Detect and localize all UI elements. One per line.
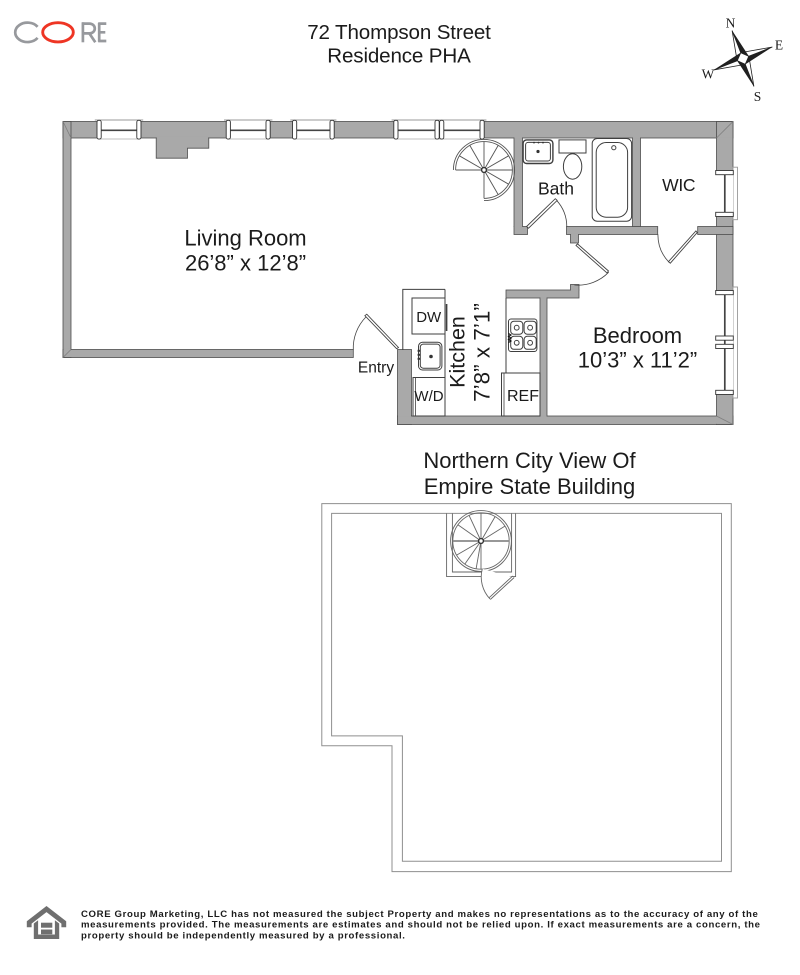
svg-text:REF: REF — [507, 388, 539, 405]
svg-text:Bath: Bath — [538, 178, 574, 198]
svg-text:72 Thompson Street: 72 Thompson Street — [307, 21, 491, 44]
svg-text:WIC: WIC — [662, 175, 695, 195]
svg-text:E: E — [775, 37, 783, 52]
svg-text:CORE Group Marketing, LLC has: CORE Group Marketing, LLC has not measur… — [81, 909, 758, 920]
svg-text:7’8” x 7’1”: 7’8” x 7’1” — [470, 303, 495, 402]
svg-text:property should be independent: property should be independently measure… — [81, 930, 406, 941]
svg-text:Entry: Entry — [358, 360, 394, 377]
svg-text:W: W — [702, 66, 715, 81]
svg-text:Living Room: Living Room — [184, 225, 306, 250]
svg-text:W/D: W/D — [414, 388, 443, 405]
svg-text:measurements provided. The mea: measurements provided. The measurements … — [81, 920, 761, 931]
svg-text:Residence PHA: Residence PHA — [327, 44, 471, 67]
svg-text:26’8” x 12’8”: 26’8” x 12’8” — [185, 251, 306, 276]
svg-text:Northern City View Of: Northern City View Of — [423, 448, 636, 473]
svg-text:Kitchen: Kitchen — [446, 316, 470, 388]
svg-text:Bedroom: Bedroom — [593, 323, 682, 348]
svg-text:Empire State Building: Empire State Building — [424, 474, 636, 499]
svg-text:S: S — [754, 89, 762, 104]
svg-text:N: N — [726, 15, 736, 30]
svg-text:10’3” x 11’2”: 10’3” x 11’2” — [578, 348, 697, 373]
svg-text:DW: DW — [416, 309, 442, 326]
